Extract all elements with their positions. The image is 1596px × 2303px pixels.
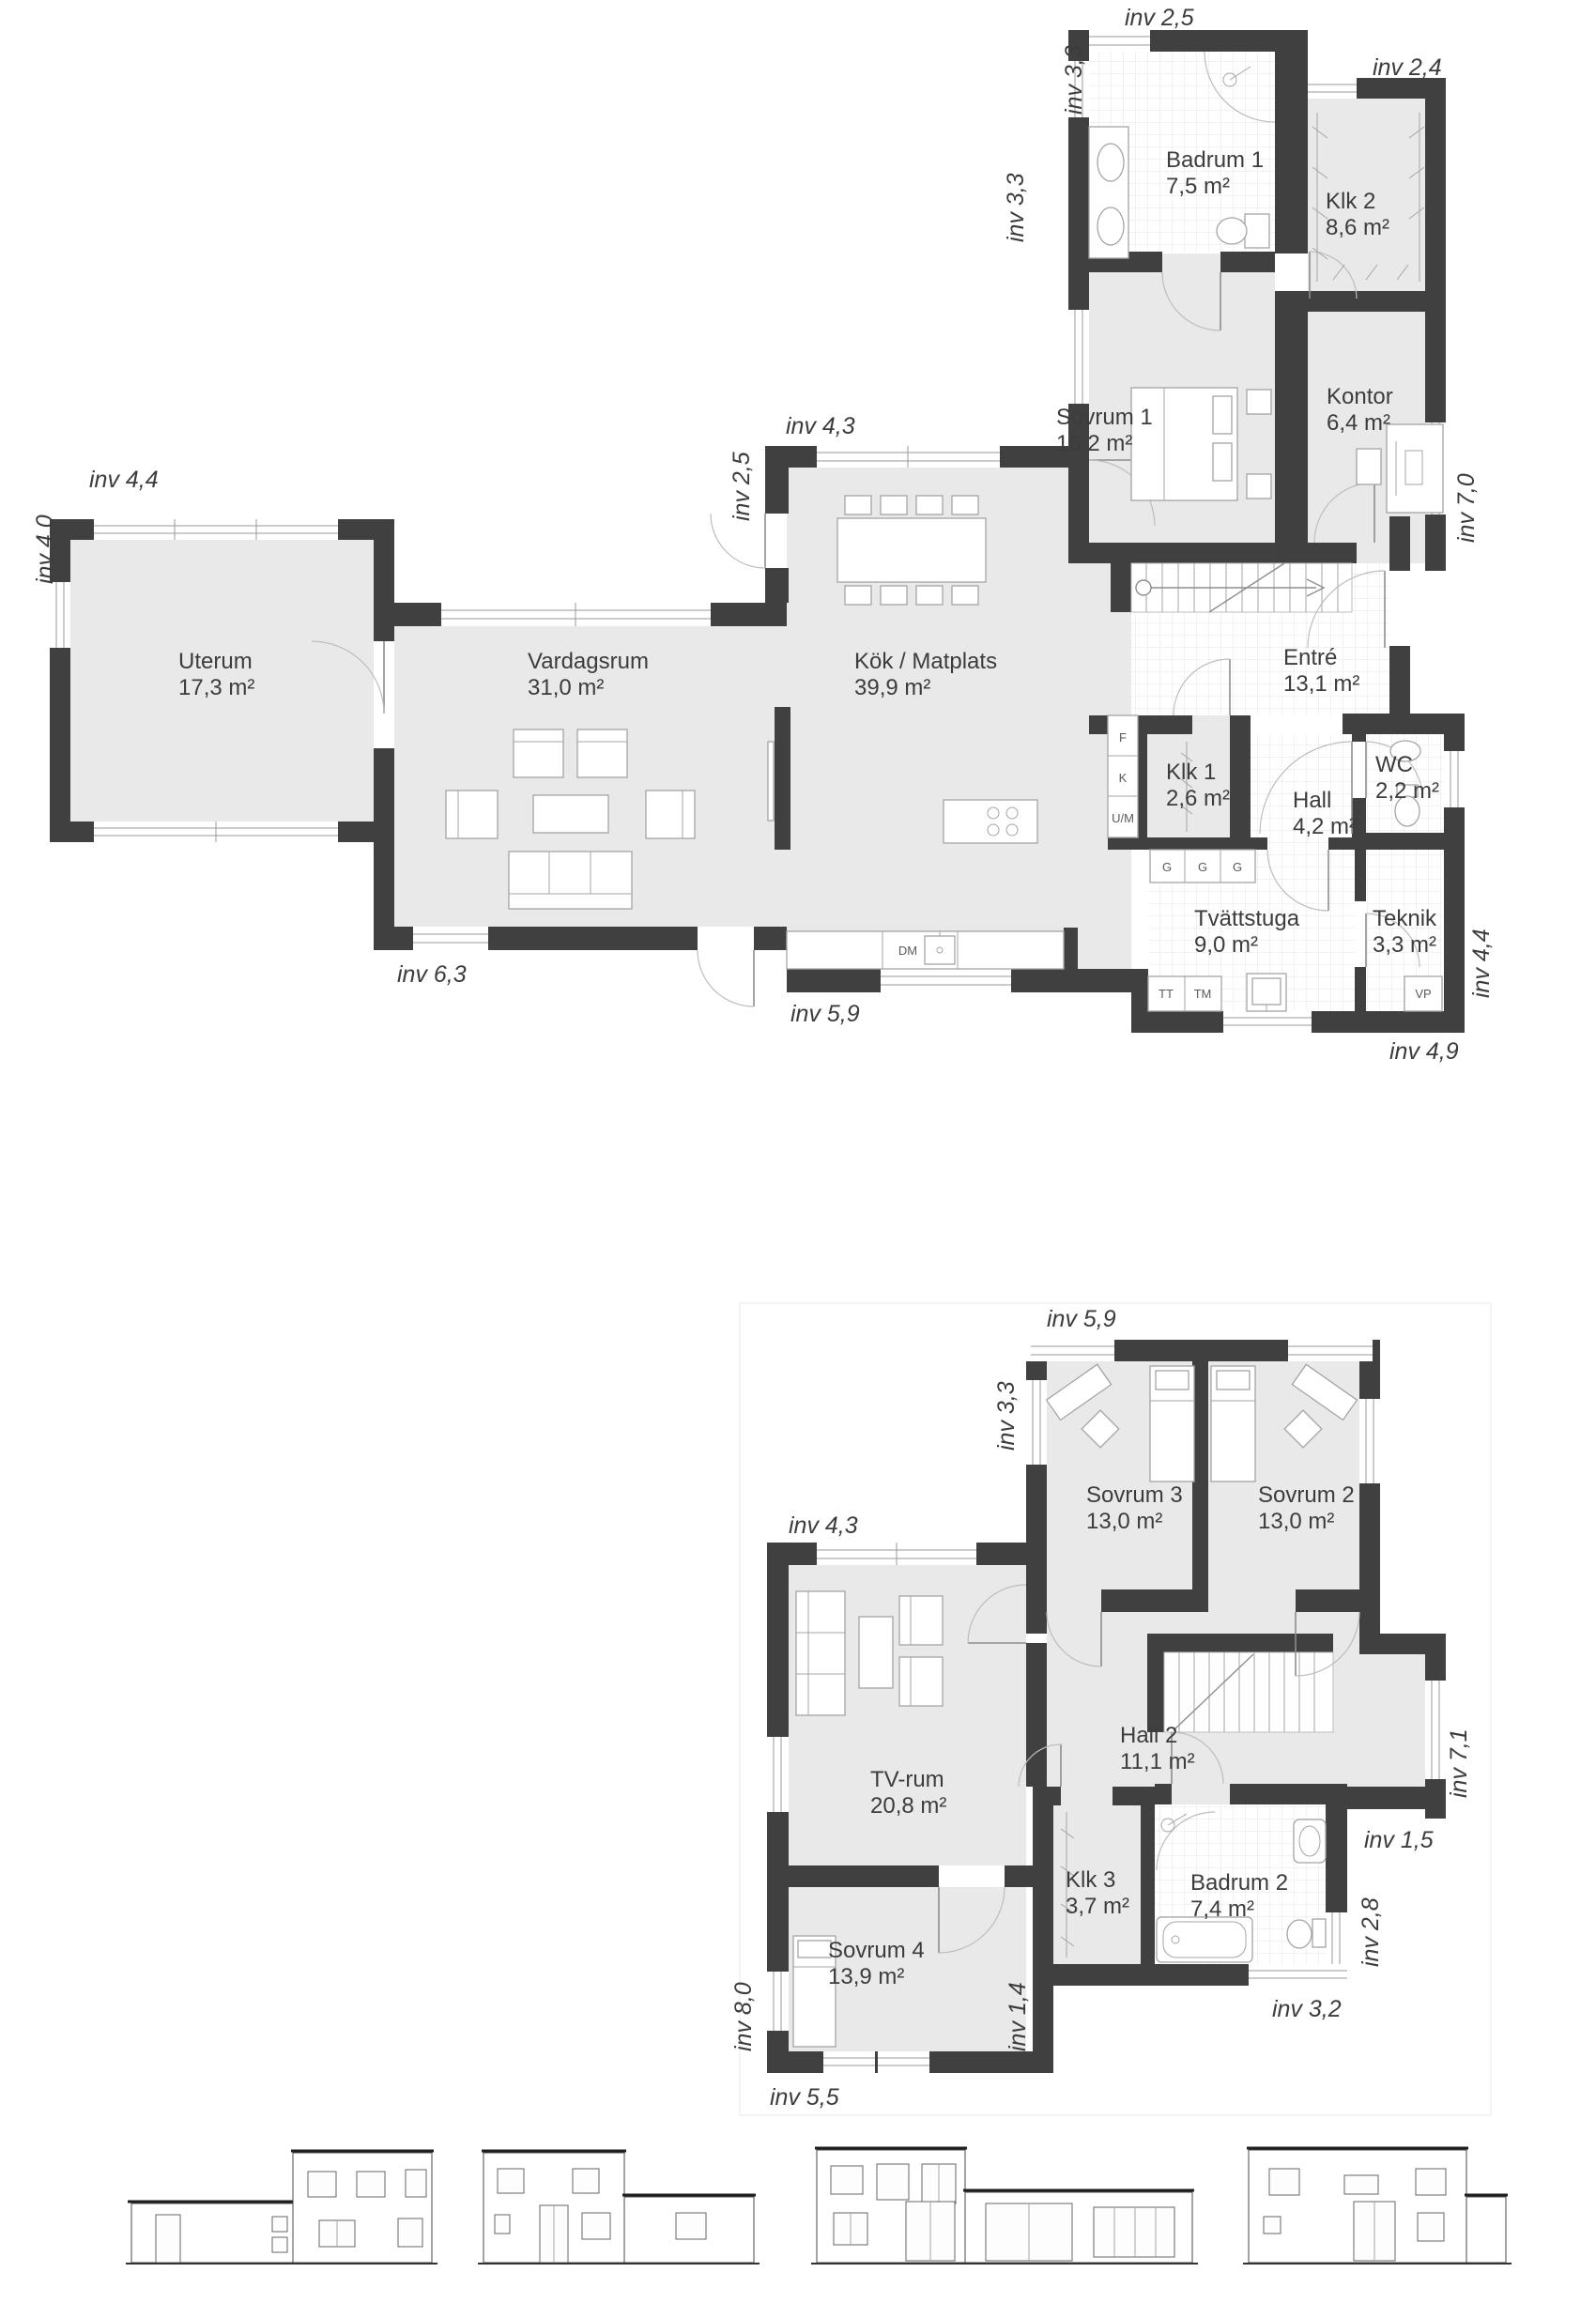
area-sovrum4: 13,9 m² — [828, 1964, 904, 1989]
dim-inv-7-1: inv 7,1 — [1446, 1728, 1472, 1798]
area-sovrum3: 13,0 m² — [1086, 1509, 1162, 1534]
label-klk1: Klk 1 — [1166, 760, 1216, 785]
window — [94, 519, 338, 540]
label-sovrum2: Sovrum 2 — [1258, 1482, 1355, 1508]
area-hall: 4,2 m² — [1293, 814, 1357, 839]
label-hall2: Hall 2 — [1120, 1723, 1177, 1748]
window — [1068, 310, 1089, 404]
area-badrum2: 7,4 m² — [1190, 1896, 1254, 1922]
label-kok: Kök / Matplats — [854, 649, 997, 674]
label-uterum: Uterum — [178, 649, 253, 674]
window — [1326, 1912, 1347, 1964]
window — [1031, 1340, 1114, 1361]
floor1-plan: Uterum 17,3 m² Vardagsrum 31,0 m² Kök / … — [32, 5, 1495, 1065]
label-teknik: Teknik — [1373, 906, 1437, 931]
area-sovrum1: 16,2 m² — [1056, 431, 1132, 456]
area-uterum: 17,3 m² — [178, 675, 254, 700]
window — [767, 1972, 789, 2031]
dim-inv-7-0: inv 7,0 — [1453, 473, 1480, 543]
floorplan-drawing: Uterum 17,3 m² Vardagsrum 31,0 m² Kök / … — [0, 0, 1596, 2303]
stair-newel — [1136, 580, 1151, 595]
kitchen-island — [944, 800, 1037, 843]
area-tvattstuga: 9,0 m² — [1194, 932, 1258, 958]
area-kontor: 6,4 m² — [1327, 410, 1390, 436]
window — [1026, 1380, 1047, 1465]
floor1-stair — [1131, 563, 1352, 612]
area-entre: 13,1 m² — [1283, 671, 1359, 697]
dim-inv-4-4-right: inv 4,4 — [1468, 929, 1495, 998]
label-fridge: F — [1119, 730, 1127, 745]
label-dishwasher: DM — [898, 944, 917, 958]
dim-inv-3-3-a: inv 3,3 — [1061, 45, 1087, 115]
label-vardagsrum: Vardagsrum — [528, 649, 649, 674]
label-cabinet-g3: G — [1233, 860, 1242, 874]
window — [1308, 78, 1357, 99]
label-oven-micro: U/M — [1112, 811, 1134, 825]
label-heatpump: VP — [1415, 987, 1431, 1001]
label-cabinet-g1: G — [1162, 860, 1172, 874]
label-badrum1: Badrum 1 — [1166, 147, 1264, 173]
sovrum3-bed — [1150, 1366, 1194, 1482]
window — [50, 582, 70, 648]
label-sovrum4: Sovrum 4 — [828, 1938, 925, 1963]
dim-inv-3-3-b: inv 3,3 — [1003, 173, 1029, 242]
dim-inv-5-9: inv 5,9 — [790, 1001, 860, 1027]
area-badrum1: 7,5 m² — [1166, 174, 1230, 199]
floor2-stair — [1164, 1652, 1333, 1732]
label-cabinet-g2: G — [1198, 860, 1207, 874]
label-washer: TM — [1194, 987, 1212, 1001]
window — [413, 927, 488, 950]
window — [1223, 1011, 1312, 1033]
area-vardagsrum: 31,0 m² — [528, 675, 604, 700]
dim-inv-5-9-top: inv 5,9 — [1047, 1306, 1116, 1332]
elevation-2 — [478, 2151, 760, 2264]
area-wc: 2,2 m² — [1375, 778, 1439, 804]
area-sovrum2: 13,0 m² — [1258, 1509, 1334, 1534]
door — [698, 950, 754, 1006]
dim-inv-1-4: inv 1,4 — [1005, 1982, 1031, 2051]
window — [817, 1543, 976, 1565]
label-sovrum1: Sovrum 1 — [1056, 405, 1153, 430]
kitchen-counter — [787, 930, 1064, 969]
dim-inv-3-3: inv 3,3 — [993, 1381, 1020, 1451]
window — [1444, 751, 1465, 807]
area-teknik: 3,3 m² — [1373, 932, 1436, 958]
area-klk1: 2,6 m² — [1166, 786, 1230, 811]
window — [878, 2051, 929, 2073]
window — [767, 1737, 789, 1812]
sovrum2-bed — [1211, 1366, 1255, 1482]
window — [1089, 30, 1150, 52]
dim-inv-1-5: inv 1,5 — [1364, 1827, 1434, 1853]
label-kontor: Kontor — [1327, 384, 1393, 409]
dim-inv-4-3: inv 4,3 — [786, 413, 855, 439]
window — [1425, 1681, 1446, 1779]
area-tvrum: 20,8 m² — [870, 1793, 946, 1819]
label-tvattstuga: Tvättstuga — [1194, 906, 1300, 931]
dim-inv-4-4-top: inv 4,4 — [89, 467, 159, 493]
label-freezer: K — [1119, 771, 1128, 785]
dim-inv-2-5-left: inv 2,5 — [729, 452, 755, 521]
window — [1359, 1399, 1380, 1483]
elevations — [126, 2148, 1512, 2264]
elevation-1 — [126, 2151, 437, 2264]
window — [1288, 1340, 1373, 1361]
dim-inv-2-5-top: inv 2,5 — [1125, 5, 1194, 31]
dim-inv-4-0: inv 4,0 — [32, 514, 58, 584]
window — [441, 603, 711, 626]
dim-inv-4-9: inv 4,9 — [1389, 1038, 1459, 1065]
label-wc: WC — [1375, 752, 1413, 777]
label-entre: Entré — [1283, 645, 1337, 670]
label-klk3: Klk 3 — [1066, 1867, 1115, 1893]
elevation-4 — [1243, 2148, 1512, 2264]
room-entre — [1131, 612, 1389, 715]
label-dryer: TT — [1159, 987, 1174, 1001]
window — [1249, 1964, 1347, 1986]
dim-inv-6-3: inv 6,3 — [397, 961, 467, 988]
dim-inv-5-5: inv 5,5 — [770, 2084, 839, 2111]
dim-inv-4-3-f2: inv 4,3 — [789, 1512, 858, 1539]
dim-inv-8-0: inv 8,0 — [730, 1982, 757, 2051]
elevation-3 — [811, 2148, 1198, 2264]
window — [94, 821, 338, 842]
area-klk2: 8,6 m² — [1326, 215, 1389, 240]
window — [823, 2051, 875, 2073]
window — [881, 969, 1011, 992]
label-hall: Hall — [1293, 788, 1331, 813]
label-badrum2: Badrum 2 — [1190, 1870, 1288, 1896]
dim-inv-2-4: inv 2,4 — [1373, 54, 1442, 81]
floor2-plan: Sovrum 3 13,0 m² Sovrum 2 13,0 m² TV-rum… — [730, 1303, 1491, 2115]
area-kok: 39,9 m² — [854, 675, 930, 700]
label-sovrum3: Sovrum 3 — [1086, 1482, 1183, 1508]
dim-inv-3-2: inv 3,2 — [1272, 1996, 1342, 2022]
label-tvrum: TV-rum — [870, 1767, 944, 1792]
area-hall2: 11,1 m² — [1120, 1749, 1195, 1774]
window — [817, 446, 1000, 468]
dim-inv-2-8: inv 2,8 — [1358, 1897, 1384, 1967]
label-klk2: Klk 2 — [1326, 189, 1375, 214]
area-klk3: 3,7 m² — [1066, 1894, 1129, 1919]
